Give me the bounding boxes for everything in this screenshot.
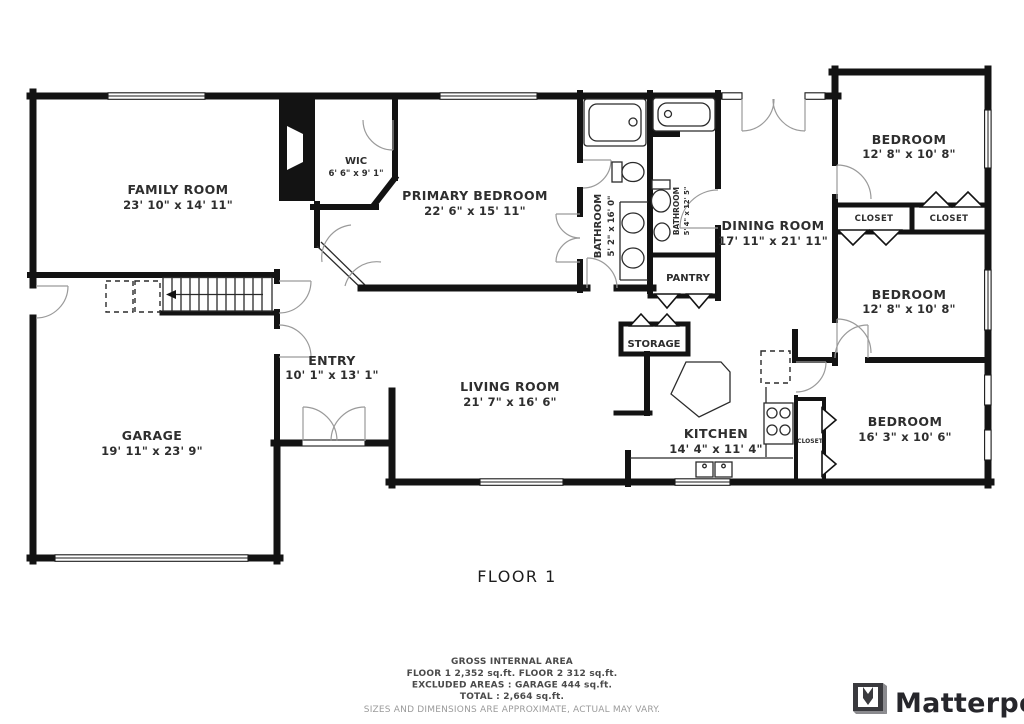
toilet-tank bbox=[652, 180, 670, 189]
room-label-pantry: PANTRY bbox=[666, 273, 710, 284]
svg-text:10' 1" x 13' 1": 10' 1" x 13' 1" bbox=[285, 368, 378, 382]
svg-text:LIVING ROOM: LIVING ROOM bbox=[460, 379, 560, 394]
room-label-living-room: LIVING ROOM 21' 7" x 16' 6" bbox=[460, 379, 560, 409]
svg-text:BATHROOM: BATHROOM bbox=[593, 194, 604, 258]
room-label-kitchen: KITCHEN 14' 4" x 11' 4" bbox=[669, 426, 762, 456]
room-label-bathroom-primary: BATHROOM 5' 2" x 16' 0" bbox=[593, 194, 617, 258]
sink bbox=[622, 248, 644, 268]
svg-text:PRIMARY BEDROOM: PRIMARY BEDROOM bbox=[402, 188, 548, 203]
svg-text:6' 6" x 9' 1": 6' 6" x 9' 1" bbox=[328, 169, 383, 179]
room-label-bedroom-middle-right: BEDROOM 12' 8" x 10' 8" bbox=[862, 287, 955, 316]
svg-text:14' 4" x 11' 4": 14' 4" x 11' 4" bbox=[669, 442, 762, 456]
svg-text:5' 2" x 16' 0": 5' 2" x 16' 0" bbox=[607, 196, 617, 257]
floor-plan-drawing: FAMILY ROOM 23' 10" x 14' 11" WIC 6' 6" … bbox=[0, 0, 1024, 724]
area-summary: GROSS INTERNAL AREA FLOOR 1 2,352 sq.ft.… bbox=[364, 657, 660, 715]
room-label-bedroom-top-right: BEDROOM 12' 8" x 10' 8" bbox=[862, 132, 955, 161]
svg-text:PANTRY: PANTRY bbox=[666, 273, 710, 284]
room-label-closet-left: CLOSET bbox=[855, 214, 894, 224]
excluded-areas-line: EXCLUDED AREAS : GARAGE 444 sq.ft. bbox=[412, 681, 612, 691]
floor-label: FLOOR 1 bbox=[477, 567, 557, 586]
sink bbox=[622, 213, 644, 233]
room-label-primary-bedroom: PRIMARY BEDROOM 22' 6" x 15' 11" bbox=[402, 188, 548, 218]
svg-text:16' 3" x 10' 6": 16' 3" x 10' 6" bbox=[858, 430, 951, 444]
svg-text:17' 11" x 21' 11": 17' 11" x 21' 11" bbox=[718, 234, 828, 248]
doors bbox=[36, 99, 871, 441]
svg-text:12' 8" x 10' 8": 12' 8" x 10' 8" bbox=[862, 302, 955, 316]
floor-areas-line: FLOOR 1 2,352 sq.ft. FLOOR 2 312 sq.ft. bbox=[407, 669, 618, 679]
windows bbox=[55, 93, 991, 562]
gross-area-heading: GROSS INTERNAL AREA bbox=[451, 657, 573, 667]
utility-dashed-box bbox=[106, 281, 133, 312]
total-area-line: TOTAL : 2,664 sq.ft. bbox=[460, 692, 564, 702]
room-label-storage: STORAGE bbox=[627, 339, 680, 350]
refrigerator-dashed-box bbox=[761, 351, 790, 383]
matterport-logo: Matterport bbox=[853, 683, 1024, 719]
stairs bbox=[163, 278, 272, 312]
svg-text:BEDROOM: BEDROOM bbox=[872, 287, 947, 302]
svg-text:CLOSET: CLOSET bbox=[797, 438, 824, 445]
room-label-garage: GARAGE 19' 11" x 23' 9" bbox=[101, 428, 203, 458]
svg-text:BEDROOM: BEDROOM bbox=[868, 414, 943, 429]
svg-text:21' 7" x 16' 6": 21' 7" x 16' 6" bbox=[463, 395, 556, 409]
toilet bbox=[622, 163, 644, 182]
room-label-family-room: FAMILY ROOM 23' 10" x 14' 11" bbox=[123, 182, 233, 212]
room-label-bedroom-bottom-right: BEDROOM 16' 3" x 10' 6" bbox=[858, 414, 951, 444]
kitchen-fixtures bbox=[630, 351, 793, 477]
matterport-wordmark: Matterport bbox=[895, 688, 1024, 719]
toilet bbox=[652, 190, 671, 212]
room-label-closet-hall: CLOSET bbox=[797, 438, 824, 445]
svg-text:CLOSET: CLOSET bbox=[930, 214, 969, 224]
svg-text:BATHROOM: BATHROOM bbox=[672, 187, 681, 235]
toilet-tank bbox=[612, 162, 622, 182]
svg-text:23' 10" x 14' 11": 23' 10" x 14' 11" bbox=[123, 198, 233, 212]
utility-dashed-box bbox=[135, 281, 160, 312]
svg-text:KITCHEN: KITCHEN bbox=[684, 426, 748, 441]
svg-text:19' 11" x 23' 9": 19' 11" x 23' 9" bbox=[101, 444, 203, 458]
svg-text:WIC: WIC bbox=[345, 156, 367, 167]
svg-text:5' 4" x 12' 5": 5' 4" x 12' 5" bbox=[683, 187, 691, 236]
svg-text:22' 6" x 15' 11": 22' 6" x 15' 11" bbox=[424, 204, 526, 218]
svg-text:12' 8" x 10' 8": 12' 8" x 10' 8" bbox=[862, 147, 955, 161]
garage-fixtures bbox=[106, 281, 160, 312]
french-door-threshold bbox=[302, 440, 365, 446]
room-label-dining-room: DINING ROOM 17' 11" x 21' 11" bbox=[718, 218, 828, 248]
disclaimer-line: SIZES AND DIMENSIONS ARE APPROXIMATE, AC… bbox=[364, 705, 660, 715]
floor-plan-page: FAMILY ROOM 23' 10" x 14' 11" WIC 6' 6" … bbox=[0, 0, 1024, 724]
matterport-cube-icon bbox=[853, 683, 887, 714]
room-label-closet-right: CLOSET bbox=[930, 214, 969, 224]
svg-text:BEDROOM: BEDROOM bbox=[872, 132, 947, 147]
svg-text:GARAGE: GARAGE bbox=[122, 428, 182, 443]
svg-text:CLOSET: CLOSET bbox=[855, 214, 894, 224]
svg-text:FAMILY ROOM: FAMILY ROOM bbox=[127, 182, 228, 197]
svg-text:ENTRY: ENTRY bbox=[308, 353, 356, 368]
room-label-wic: WIC 6' 6" x 9' 1" bbox=[328, 156, 383, 179]
kitchen-island bbox=[671, 362, 730, 417]
svg-text:STORAGE: STORAGE bbox=[627, 339, 680, 350]
svg-text:DINING ROOM: DINING ROOM bbox=[722, 218, 825, 233]
sink bbox=[654, 223, 670, 241]
